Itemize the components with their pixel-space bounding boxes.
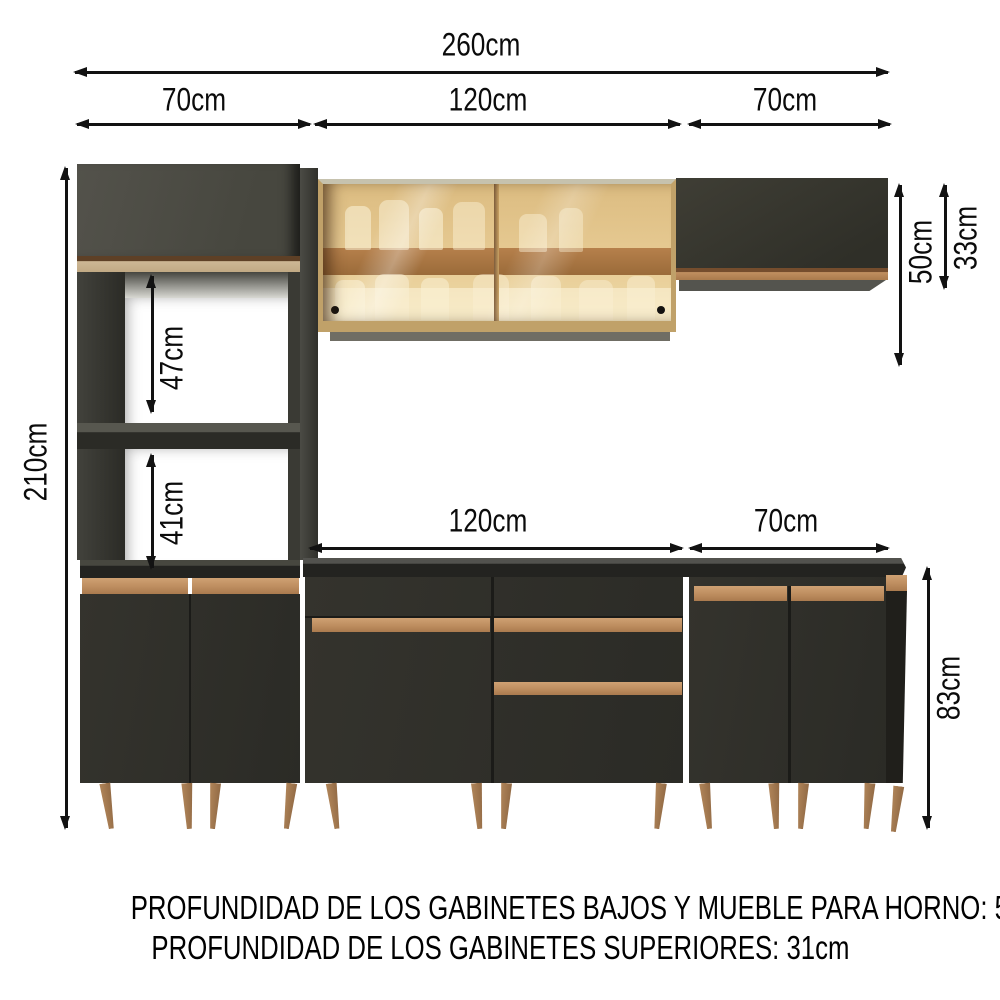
countertop [303, 558, 906, 577]
dim-label-top-center-width: 120cm [449, 82, 528, 119]
dim-label-top-right-width: 70cm [753, 82, 817, 119]
dim-label-lower-niche: 41cm [154, 481, 191, 545]
dim-label-upper-niche: 47cm [154, 326, 191, 390]
dim-arrow-top-center-width [315, 123, 680, 126]
dim-arrow-total-width [75, 71, 888, 74]
tower-niche-left-wall [77, 272, 125, 560]
center-base-vertical-seam [491, 577, 494, 783]
dim-label-top-left-width: 70cm [162, 82, 226, 119]
dim-label-counter-right: 70cm [754, 503, 818, 540]
cabinet-leg [697, 782, 718, 829]
depth-note-lower-text: PROFUNDIDAD DE LOS GABINETES BAJOS Y MUE… [131, 889, 1000, 927]
cabinet-leg [792, 782, 811, 829]
tower-top-cabinet [77, 164, 300, 256]
right-wall-cabinet-trim [676, 268, 888, 280]
tower-base-door-seam [189, 594, 191, 783]
cabinet-leg [323, 782, 344, 830]
dim-label-base-height: 83cm [931, 656, 968, 720]
right-base-handle-left [694, 586, 787, 601]
cabinet-leg [885, 785, 906, 833]
dim-arrow-top-right-width [689, 123, 890, 126]
kitchen-dimension-diagram: 260cm 70cm 120cm 70cm 210cm 47cm 41cm 50… [0, 0, 1000, 1000]
tower-trim [77, 256, 300, 272]
cabinet-leg [204, 782, 223, 829]
center-base-cabinet [305, 577, 683, 783]
dim-label-total-width: 260cm [442, 27, 521, 64]
tower-base-top [80, 560, 300, 578]
cabinet-leg [97, 782, 119, 830]
dim-label-wall-drop: 50cm [903, 220, 940, 284]
cabinet-leg [179, 783, 197, 830]
dim-label-wall-height: 33cm [948, 206, 985, 270]
tower-shelf [77, 423, 300, 449]
dim-arrow-counter-center [310, 547, 682, 550]
right-wall-cabinet [676, 178, 888, 268]
depth-note-upper-cabinets: PROFUNDIDAD DE LOS GABINETES SUPERIORES:… [0, 929, 1000, 967]
dim-arrow-top-left-width [77, 123, 310, 126]
center-base-handle-left [312, 618, 490, 632]
right-base-door-seam [788, 586, 791, 783]
right-base-side-panel [886, 591, 907, 783]
cabinet-leg [858, 782, 878, 829]
glass-reflection [323, 184, 671, 321]
center-base-handle-right-upper [494, 618, 682, 632]
depth-note-lower-cabinets: PROFUNDIDAD DE LOS GABINETES BAJOS Y MUE… [0, 889, 1000, 927]
tower-base-handle-left [82, 578, 188, 594]
center-base-handle-right-lower [494, 682, 682, 695]
cabinet-leg [766, 783, 784, 830]
dim-label-counter-center: 120cm [449, 503, 528, 540]
glass-wall-cabinet [318, 179, 676, 332]
right-base-handle-right [791, 586, 884, 601]
tower-base-handle-right [192, 578, 299, 594]
dim-arrow-counter-right [690, 547, 888, 550]
cabinet-leg [278, 782, 299, 830]
glass-cabinet-underside [330, 332, 670, 341]
depth-note-upper-text: PROFUNDIDAD DE LOS GABINETES SUPERIORES:… [151, 929, 849, 967]
cabinet-leg [468, 782, 487, 829]
cabinet-leg [495, 782, 514, 829]
cabinet-leg [649, 782, 670, 829]
dim-arrow-total-height [65, 168, 68, 828]
right-base-side-trim [886, 575, 907, 591]
tower-niche-right-wall [288, 272, 300, 560]
support-column [300, 168, 318, 560]
dim-label-total-height: 210cm [18, 423, 55, 502]
right-wall-cabinet-underside [679, 280, 886, 291]
